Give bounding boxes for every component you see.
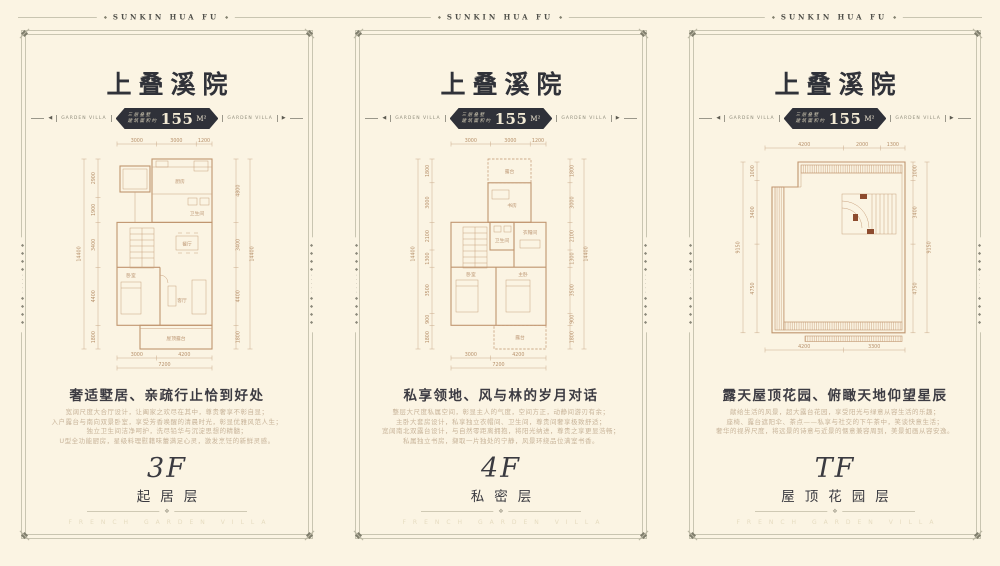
area-unit: M² bbox=[864, 115, 874, 123]
description-line: 入户露台与南向双景卧室，享受芳香唤醒的清晨时光，彰显优雅风范人生； bbox=[22, 418, 312, 428]
plan-walls bbox=[772, 162, 905, 342]
plan-walls: 露台 书房 卫生间 衣帽间 卧室 主卧 bbox=[451, 159, 546, 349]
badge-line2: 建筑面积约 bbox=[796, 119, 826, 125]
dim-label: 1000 bbox=[913, 165, 919, 177]
ornament-diamond-icon: ◆ bbox=[559, 15, 562, 20]
brand-header: ◆ SUNKIN HUA FU ◆ bbox=[431, 13, 569, 22]
description-line: 整层大尺度私属空间，彰显主人的气度，空间方正，动静间游刃有余； bbox=[356, 408, 646, 418]
dim-label: 3000 bbox=[131, 352, 143, 358]
divider-ornament-icon: ❖ bbox=[493, 508, 508, 516]
dim-label: 4400 bbox=[236, 290, 242, 302]
dim-label: 1000 bbox=[750, 165, 756, 177]
area-badge-row: ◀ GARDEN VILLA 三层叠墅 建筑面积约 155 M² GARDEN … bbox=[356, 108, 646, 129]
panel-private-floor: ◆◆◆◆·····◆◆◆◆ ◆◆◆◆·····◆◆◆◆ 上叠溪院 ◀ GARDE… bbox=[355, 30, 647, 539]
ornament-diamond-icon: ◆ bbox=[104, 15, 107, 20]
side-ornament-icon: ◆◆◆◆·····◆◆◆◆ bbox=[309, 237, 314, 332]
panel-caption: FRENCH GARDEN VILLA bbox=[356, 519, 646, 526]
garden-villa-label: GARDEN VILLA bbox=[222, 115, 277, 122]
right-arrow-icon: ▶ bbox=[616, 116, 620, 121]
panel-living-floor: ◆◆◆◆·····◆◆◆◆ ◆◆◆◆·····◆◆◆◆ 上叠溪院 ◀ GARDE… bbox=[21, 30, 313, 539]
floor-label: 3F 起居层 bbox=[22, 454, 312, 505]
ornament-diamond-icon: ◆ bbox=[225, 15, 228, 20]
floor-label: TF 屋顶花园层 bbox=[690, 454, 980, 505]
panel-roof-garden-floor: ◆◆◆◆·····◆◆◆◆ ◆◆◆◆·····◆◆◆◆ 上叠溪院 ◀ GARDE… bbox=[689, 30, 981, 539]
room-label: 卫生间 bbox=[495, 237, 510, 244]
floor-code: 4F bbox=[481, 453, 521, 484]
corner-diamond-icon bbox=[306, 532, 313, 539]
panel-title: 上叠溪院 bbox=[22, 65, 312, 101]
side-ornament-icon: ◆◆◆◆·····◆◆◆◆ bbox=[688, 237, 693, 332]
ornament-diamond-icon: ◆ bbox=[772, 15, 775, 20]
dim-label: 2100 bbox=[570, 230, 576, 242]
dim-label: 1200 bbox=[532, 138, 544, 144]
dim-label: 1300 bbox=[887, 142, 899, 148]
dim-label: 3000 bbox=[131, 138, 143, 144]
dim-label: 4200 bbox=[512, 352, 524, 358]
dim-label: 14400 bbox=[77, 246, 83, 261]
description-line: U型全功能厨房，星级料理慰藉味蕾满足心灵，激发烹饪的新鲜灵感。 bbox=[22, 437, 312, 447]
garden-villa-label: GARDEN VILLA bbox=[890, 115, 945, 122]
dim-label: 4200 bbox=[798, 344, 810, 350]
panel-description: 献给生活的风景，超大露台花园，享受阳光与绿意从容生活的乐趣； 座椅、露台遮阳伞、… bbox=[690, 408, 980, 446]
badge-line2: 建筑面积约 bbox=[462, 119, 492, 125]
description-line: 奢华的视界尺度，将远景的诗意与近景的惬意兼容周到，美景如画从容安逸。 bbox=[690, 427, 980, 437]
brand-text: SUNKIN HUA FU bbox=[447, 13, 553, 22]
dim-label: 4750 bbox=[913, 282, 919, 294]
garden-villa-label: GARDEN VILLA bbox=[390, 115, 445, 122]
rule-icon bbox=[699, 118, 712, 119]
dim-label: 2900 bbox=[91, 172, 97, 184]
room-label: 书房 bbox=[507, 202, 517, 209]
divider-ornament-icon: ❖ bbox=[827, 508, 842, 516]
dim-label: 9150 bbox=[927, 241, 933, 253]
floor-name: 起居层 bbox=[22, 485, 312, 505]
floor-name: 私密层 bbox=[356, 485, 646, 505]
dim-label: 14400 bbox=[250, 246, 256, 261]
dim-label: 3000 bbox=[425, 196, 431, 208]
corner-diamond-icon bbox=[355, 30, 362, 37]
corner-diamond-icon bbox=[689, 30, 696, 37]
dim-label: 2100 bbox=[425, 230, 431, 242]
dim-label: 3400 bbox=[913, 206, 919, 218]
panel-title: 上叠溪院 bbox=[690, 65, 980, 101]
dim-label: 3400 bbox=[750, 206, 756, 218]
room-label: 卫生间 bbox=[190, 210, 205, 217]
panel-description: 整层大尺度私属空间，彰显主人的气度，空间方正，动静间游刃有余； 主卧大套房设计，… bbox=[356, 408, 646, 446]
floor-plan-3f: 3000 3000 1200 14400 2900 1900 3400 4400… bbox=[42, 134, 292, 374]
dim-label: 4750 bbox=[750, 282, 756, 294]
corner-diamond-icon bbox=[21, 30, 28, 37]
dim-label: 1900 bbox=[91, 204, 97, 216]
plan-walls: 厨房 卫生间 餐厅 卧室 客厅 bbox=[117, 159, 212, 349]
ornament-diamond-icon: ◆ bbox=[893, 15, 896, 20]
rule-icon bbox=[958, 118, 971, 119]
panel-caption: FRENCH GARDEN VILLA bbox=[690, 519, 980, 526]
dim-label: 1800 bbox=[425, 331, 431, 343]
dim-label: 2000 bbox=[856, 142, 868, 148]
brand-header: ◆ SUNKIN HUA FU ◆ bbox=[765, 13, 903, 22]
right-arrow-icon: ▶ bbox=[282, 116, 286, 121]
left-arrow-icon: ◀ bbox=[382, 116, 386, 121]
side-ornament-icon: ◆◆◆◆·····◆◆◆◆ bbox=[354, 237, 359, 332]
dim-label: 4200 bbox=[178, 352, 190, 358]
brand-text: SUNKIN HUA FU bbox=[113, 13, 219, 22]
room-label: 主卧 bbox=[518, 271, 528, 278]
badge-line2: 建筑面积约 bbox=[128, 119, 158, 125]
dim-label: 900 bbox=[425, 315, 431, 324]
dim-label: 4800 bbox=[236, 185, 242, 197]
area-badge-row: ◀ GARDEN VILLA 三层叠墅 建筑面积约 155 M² GARDEN … bbox=[22, 108, 312, 129]
rule-icon bbox=[365, 118, 378, 119]
dim-label: 4400 bbox=[91, 290, 97, 302]
room-label: 客厅 bbox=[177, 297, 187, 304]
room-label: 厨房 bbox=[175, 178, 185, 185]
dim-label: 14400 bbox=[411, 246, 417, 261]
panel-title: 上叠溪院 bbox=[356, 65, 646, 101]
dim-label: 3000 bbox=[170, 138, 182, 144]
corner-diamond-icon bbox=[21, 532, 28, 539]
rule-icon bbox=[290, 118, 303, 119]
dim-label: 1200 bbox=[198, 138, 210, 144]
dim-label: 3000 bbox=[570, 196, 576, 208]
dim-label: 1800 bbox=[570, 331, 576, 343]
description-line: 独立卫生间洁净呵护，洗尽铅华与沉淀思想的精髓； bbox=[22, 427, 312, 437]
area-value: 155 bbox=[495, 110, 528, 128]
room-label: 露台 bbox=[505, 168, 515, 175]
panel-headline: 私享领地、风与林的岁月对话 bbox=[356, 384, 646, 404]
corner-diamond-icon bbox=[640, 30, 647, 37]
divider: ❖ bbox=[87, 511, 247, 517]
dim-label: 1800 bbox=[236, 331, 242, 343]
dim-label: 3000 bbox=[504, 138, 516, 144]
area-value: 155 bbox=[829, 110, 862, 128]
brand-header: ◆ SUNKIN HUA FU ◆ bbox=[97, 13, 235, 22]
dim-label: 14400 bbox=[584, 246, 590, 261]
side-ornament-icon: ◆◆◆◆·····◆◆◆◆ bbox=[643, 237, 648, 332]
floor-plan-roof: 4200 2000 1300 9150 1000 3400 4750 1000 … bbox=[710, 134, 960, 374]
panel-description: 宽阔尺度大合厅设计，让阖家之欢尽在其中，尊贵奢享不彰自显； 入户露台与南向双景卧… bbox=[22, 408, 312, 446]
area-unit: M² bbox=[196, 115, 206, 123]
rule-icon bbox=[624, 118, 637, 119]
area-unit: M² bbox=[530, 115, 540, 123]
side-ornament-icon: ◆◆◆◆·····◆◆◆◆ bbox=[20, 237, 25, 332]
dim-label: 3300 bbox=[868, 344, 880, 350]
area-badge: 三层叠墅 建筑面积约 155 M² bbox=[784, 108, 887, 129]
dim-label: 3000 bbox=[465, 352, 477, 358]
dim-label: 7200 bbox=[158, 362, 170, 368]
dim-label: 3400 bbox=[236, 239, 242, 251]
floor-code: 3F bbox=[147, 453, 187, 484]
room-label: 餐厅 bbox=[182, 241, 192, 248]
dim-label: 7200 bbox=[492, 362, 504, 368]
corner-diamond-icon bbox=[974, 532, 981, 539]
dim-label: 1300 bbox=[570, 252, 576, 264]
ornament-diamond-icon: ◆ bbox=[438, 15, 441, 20]
dim-label: 9150 bbox=[736, 241, 742, 253]
room-label: 露台 bbox=[515, 334, 525, 341]
brand-text: SUNKIN HUA FU bbox=[781, 13, 887, 22]
description-line: 宽阔南北双露台设计，与自然零距离拥抱，将阳光纳进，尊贵之享更显浩畅； bbox=[356, 427, 646, 437]
corner-diamond-icon bbox=[974, 30, 981, 37]
divider: ❖ bbox=[755, 511, 915, 517]
area-badge: 三层叠墅 建筑面积约 155 M² bbox=[450, 108, 553, 129]
area-badge-row: ◀ GARDEN VILLA 三层叠墅 建筑面积约 155 M² GARDEN … bbox=[690, 108, 980, 129]
garden-villa-label: GARDEN VILLA bbox=[724, 115, 779, 122]
panel-headline: 露天屋顶花园、俯瞰天地仰望星辰 bbox=[690, 384, 980, 404]
description-line: 宽阔尺度大合厅设计，让阖家之欢尽在其中，尊贵奢享不彰自显； bbox=[22, 408, 312, 418]
poster-page: ◆ SUNKIN HUA FU ◆ ◆ SUNKIN HUA FU ◆ ◆ SU… bbox=[0, 0, 1000, 566]
dim-label: 3500 bbox=[570, 284, 576, 296]
area-badge: 三层叠墅 建筑面积约 155 M² bbox=[116, 108, 219, 129]
dim-label: 1800 bbox=[91, 331, 97, 343]
left-arrow-icon: ◀ bbox=[48, 116, 52, 121]
dim-label: 3400 bbox=[91, 239, 97, 251]
dim-label: 900 bbox=[570, 315, 576, 324]
dim-label: 3500 bbox=[425, 284, 431, 296]
corner-diamond-icon bbox=[640, 532, 647, 539]
rule-icon bbox=[31, 118, 44, 119]
description-line: 私属独立书房，撷取一片独处的宁静，风景环绕品位满室书香。 bbox=[356, 437, 646, 447]
dim-label: 3000 bbox=[465, 138, 477, 144]
description-line: 主卧大套房设计，私享独立衣帽间、卫生间，尊贵间奢享极致舒适； bbox=[356, 418, 646, 428]
right-arrow-icon: ▶ bbox=[950, 116, 954, 121]
room-label: 衣帽间 bbox=[523, 229, 538, 236]
left-arrow-icon: ◀ bbox=[716, 116, 720, 121]
garden-villa-label: GARDEN VILLA bbox=[56, 115, 111, 122]
dim-label: 1800 bbox=[570, 165, 576, 177]
room-label: 卧室 bbox=[466, 271, 476, 278]
dim-label: 1300 bbox=[425, 252, 431, 264]
dim-label: 1800 bbox=[425, 165, 431, 177]
floor-name: 屋顶花园层 bbox=[690, 485, 980, 505]
panel-caption: FRENCH GARDEN VILLA bbox=[22, 519, 312, 526]
corner-diamond-icon bbox=[689, 532, 696, 539]
description-line: 座椅、露台遮阳伞、茶点——私享与社交的下午茶中，笑谈快意生活； bbox=[690, 418, 980, 428]
room-label: 屋顶露台 bbox=[166, 335, 185, 342]
divider-ornament-icon: ❖ bbox=[159, 508, 174, 516]
panel-headline: 奢适墅居、亲疏行止恰到好处 bbox=[22, 384, 312, 404]
corner-diamond-icon bbox=[355, 532, 362, 539]
dim-label: 4200 bbox=[798, 142, 810, 148]
room-label: 卧室 bbox=[126, 272, 136, 279]
divider: ❖ bbox=[421, 511, 581, 517]
side-ornament-icon: ◆◆◆◆·····◆◆◆◆ bbox=[977, 237, 982, 332]
floor-plan-4f: 3000 3000 1200 14400 1800 3000 2100 1300… bbox=[376, 134, 626, 374]
description-line: 献给生活的风景，超大露台花园，享受阳光与绿意从容生活的乐趣； bbox=[690, 408, 980, 418]
corner-diamond-icon bbox=[306, 30, 313, 37]
floor-code: TF bbox=[815, 453, 856, 484]
area-value: 155 bbox=[161, 110, 194, 128]
floor-label: 4F 私密层 bbox=[356, 454, 646, 505]
garden-villa-label: GARDEN VILLA bbox=[556, 115, 611, 122]
